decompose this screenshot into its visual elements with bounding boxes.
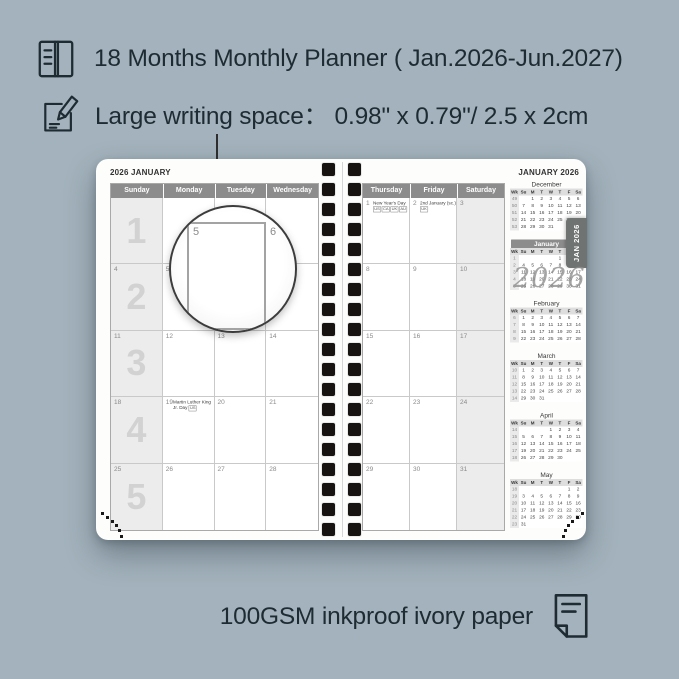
- mini-date: 21: [574, 381, 583, 388]
- binding-hole: [348, 383, 361, 396]
- right-page-title: JANUARY 2026: [518, 168, 579, 177]
- mini-date: [537, 486, 546, 493]
- mini-day-header: T: [555, 479, 564, 486]
- mini-date: 21: [555, 507, 564, 514]
- date-number: 10: [460, 266, 467, 273]
- mini-date: 3: [537, 315, 546, 322]
- mini-date: [519, 196, 528, 203]
- mini-week-number: 9: [510, 336, 519, 343]
- mini-date: 24: [537, 388, 546, 395]
- mini-day-header: Wk: [510, 248, 519, 255]
- stitch-dot: [576, 516, 579, 519]
- mini-day-header: T: [537, 360, 546, 367]
- mini-date: 10: [564, 434, 573, 441]
- mini-date: 7: [519, 203, 528, 210]
- mini-date: 25: [555, 217, 564, 224]
- mini-date: 18: [574, 441, 583, 448]
- mini-day-header: M: [528, 308, 537, 315]
- mini-week-number: 8: [510, 329, 519, 336]
- mini-date: 27: [564, 336, 573, 343]
- mini-date: [537, 255, 546, 262]
- date-number: 21: [269, 399, 276, 406]
- mini-date: 24: [546, 217, 555, 224]
- date-number: 16: [413, 333, 420, 340]
- mini-day-header: F: [564, 360, 573, 367]
- holiday-label: New Year's Day USCAUKAU: [373, 200, 411, 212]
- date-number: 30: [413, 466, 420, 473]
- mini-date: 28: [574, 336, 583, 343]
- date-number: 17: [460, 333, 467, 340]
- mini-date: 17: [519, 507, 528, 514]
- mini-date: 1: [528, 196, 537, 203]
- stitch-dot: [581, 512, 584, 515]
- week-number: 4: [111, 397, 162, 462]
- mini-date: 18: [528, 507, 537, 514]
- day-header: Saturday: [457, 184, 504, 198]
- mini-day-header: T: [555, 308, 564, 315]
- calendar-day-cell: 23: [410, 397, 457, 463]
- mini-date: 11: [546, 322, 555, 329]
- mini-day-header: Su: [519, 189, 528, 196]
- product-image: 18 Months Monthly Planner ( Jan.2026-Jun…: [0, 0, 679, 679]
- mini-week-number: 13: [510, 388, 519, 395]
- mini-date: 16: [537, 210, 546, 217]
- mini-date: 2: [528, 315, 537, 322]
- date-number: 9: [413, 266, 417, 273]
- calendar-day-cell: 20: [215, 397, 267, 463]
- mini-date: 7: [574, 315, 583, 322]
- mini-date: 13: [528, 441, 537, 448]
- date-number: 27: [218, 466, 225, 473]
- date-number: 26: [166, 466, 173, 473]
- binding-hole: [348, 343, 361, 356]
- mini-week-number: 18: [510, 455, 519, 462]
- mini-day-header: T: [537, 189, 546, 196]
- mini-date: 24: [564, 448, 573, 455]
- country-badge: UK: [420, 206, 428, 212]
- mini-day-header: Wk: [510, 420, 519, 427]
- mini-date: 13: [564, 374, 573, 381]
- mini-date: 12: [555, 322, 564, 329]
- binding-hole: [348, 503, 361, 516]
- mini-day-header: Su: [519, 308, 528, 315]
- date-number: 12: [166, 333, 173, 340]
- feature-line-2: Large writing space： 0.98" x 0.79"/ 2.5 …: [38, 93, 588, 135]
- mini-date: 14: [574, 322, 583, 329]
- mini-date: 10: [537, 322, 546, 329]
- calendar-day-cell: 22: [363, 397, 410, 463]
- mini-day-header: W: [546, 189, 555, 196]
- week-number: 5: [111, 464, 162, 530]
- mini-day-header: M: [528, 479, 537, 486]
- mini-date: 22: [546, 448, 555, 455]
- holiday-label: 2nd January (sc.) UK: [420, 200, 458, 212]
- mini-date: 14: [537, 441, 546, 448]
- mini-date: 15: [546, 441, 555, 448]
- calendar-day-cell: 21: [266, 397, 318, 463]
- calendar-day-cell: 17: [457, 331, 504, 397]
- mini-date: 26: [537, 514, 546, 521]
- binding-hole: [348, 483, 361, 496]
- mini-day-header: M: [528, 360, 537, 367]
- binding-hole: [348, 323, 361, 336]
- day-header: Thursday: [363, 184, 410, 198]
- mini-date: 29: [519, 395, 528, 402]
- calendar-day-cell: 15: [363, 331, 410, 397]
- mini-week-number: 50: [510, 203, 519, 210]
- mini-week-number: 6: [510, 315, 519, 322]
- mini-date: 31: [519, 521, 528, 528]
- mini-date: 16: [574, 500, 583, 507]
- mini-date: 2: [574, 486, 583, 493]
- mini-date: 4: [546, 315, 555, 322]
- binding-hole: [348, 403, 361, 416]
- mini-date: [555, 521, 564, 528]
- mini-date: 9: [574, 493, 583, 500]
- mini-date: 12: [519, 441, 528, 448]
- mini-date: 28: [555, 514, 564, 521]
- mini-date: 7: [574, 367, 583, 374]
- calendar-day-cell: 13: [215, 331, 267, 397]
- page-gutter-line: [342, 162, 343, 537]
- mini-calendar-title: April: [510, 411, 583, 420]
- mini-date: 20: [564, 381, 573, 388]
- mini-date: 8: [564, 493, 573, 500]
- mini-date: 4: [555, 196, 564, 203]
- mini-date: 30: [528, 395, 537, 402]
- binding-hole: [348, 363, 361, 376]
- mini-date: 24: [519, 514, 528, 521]
- mini-date: 29: [528, 224, 537, 231]
- country-badge: AU: [399, 206, 407, 212]
- mini-week-number: 11: [510, 374, 519, 381]
- date-number: 3: [460, 200, 464, 207]
- mini-date: [519, 427, 528, 434]
- mini-date: 12: [564, 203, 573, 210]
- mini-date: 30: [555, 455, 564, 462]
- mini-date: 22: [564, 507, 573, 514]
- mini-date: 18: [555, 210, 564, 217]
- mini-date: [574, 455, 583, 462]
- mini-date: 25: [546, 388, 555, 395]
- mini-date: 22: [528, 217, 537, 224]
- mini-week-number: 17: [510, 448, 519, 455]
- calendar-day-cell: 525: [111, 464, 163, 530]
- binding-hole: [348, 223, 361, 236]
- mini-date: 11: [528, 500, 537, 507]
- mini-date: [528, 255, 537, 262]
- calendar-day-cell: 28: [266, 464, 318, 530]
- feature-text-writing-space: Large writing space： 0.98" x 0.79"/ 2.5 …: [95, 97, 588, 132]
- mini-date: 9: [528, 374, 537, 381]
- mini-date: 19: [537, 507, 546, 514]
- mini-day-header: Sa: [574, 308, 583, 315]
- calendar-day-cell: 22nd January (sc.) UK: [410, 198, 457, 264]
- mini-date: [564, 455, 573, 462]
- mini-date: 7: [555, 493, 564, 500]
- mini-date: 6: [564, 367, 573, 374]
- mini-date: 21: [519, 217, 528, 224]
- mini-day-header: T: [537, 479, 546, 486]
- mini-date: [528, 486, 537, 493]
- binding-hole: [348, 203, 361, 216]
- mini-date: 2: [537, 196, 546, 203]
- mini-week-number: 52: [510, 217, 519, 224]
- mini-week-number: 18: [510, 486, 519, 493]
- feature-line-bottom: 100GSM inkproof ivory paper: [220, 591, 594, 643]
- binding-hole: [322, 163, 335, 176]
- mini-date: 21: [574, 329, 583, 336]
- mini-date: [537, 521, 546, 528]
- mini-date: 14: [574, 374, 583, 381]
- mini-date: [546, 521, 555, 528]
- calendar-day-cell: 27: [215, 464, 267, 530]
- mini-date: 8: [519, 374, 528, 381]
- mini-date: 31: [537, 395, 546, 402]
- mini-date: [574, 521, 583, 528]
- mini-date: 5: [537, 493, 546, 500]
- mini-day-header: Sa: [574, 479, 583, 486]
- date-number: 14: [269, 333, 276, 340]
- date-number: 20: [218, 399, 225, 406]
- mini-date: 3: [519, 493, 528, 500]
- mini-calendar-grid: WkSuMTWTFSa14123415567891011161213141516…: [510, 420, 583, 462]
- mini-calendar-title: February: [510, 299, 583, 308]
- stitch-dot: [571, 520, 574, 523]
- mini-day-header: T: [537, 420, 546, 427]
- binding-hole: [348, 263, 361, 276]
- mini-date: 16: [528, 329, 537, 336]
- mini-day-header: Sa: [574, 360, 583, 367]
- day-header: Monday: [163, 184, 215, 198]
- mini-date: 8: [546, 434, 555, 441]
- binding-hole: [348, 283, 361, 296]
- mini-date: 22: [519, 336, 528, 343]
- date-number: 22: [366, 399, 373, 406]
- mini-day-header: T: [537, 308, 546, 315]
- mini-day-header: W: [546, 360, 555, 367]
- mini-date: [519, 255, 528, 262]
- mini-day-header: W: [546, 248, 555, 255]
- calendar-day-cell: 1New Year's Day USCAUKAU: [363, 198, 410, 264]
- binding-hole: [322, 203, 335, 216]
- mini-date: 1: [519, 315, 528, 322]
- stitch-dot: [120, 535, 123, 538]
- mini-date: 10: [519, 500, 528, 507]
- mini-date: 23: [537, 217, 546, 224]
- mini-date: 26: [555, 388, 564, 395]
- mini-date: 15: [519, 381, 528, 388]
- mini-day-header: F: [564, 308, 573, 315]
- date-number: 23: [413, 399, 420, 406]
- year-watermark: 2026: [513, 263, 586, 294]
- mini-day-header: Wk: [510, 360, 519, 367]
- binding-hole: [322, 303, 335, 316]
- binding-hole: [322, 343, 335, 356]
- mini-day-header: T: [555, 248, 564, 255]
- mini-date: 26: [555, 336, 564, 343]
- mini-date: 4: [546, 367, 555, 374]
- binding-hole: [322, 323, 335, 336]
- date-number: 2: [413, 200, 417, 207]
- mini-date: 6: [546, 493, 555, 500]
- mini-date: 22: [519, 388, 528, 395]
- mini-week-number: 49: [510, 196, 519, 203]
- mini-date: 3: [537, 367, 546, 374]
- mini-week-number: 20: [510, 500, 519, 507]
- mini-date: [528, 427, 537, 434]
- binding-hole: [348, 183, 361, 196]
- mini-date: 21: [537, 448, 546, 455]
- mini-day-header: T: [555, 360, 564, 367]
- mini-date: 20: [574, 210, 583, 217]
- calendar-day-cell: 418: [111, 397, 163, 463]
- paper-sheet-icon: [546, 591, 594, 643]
- mini-date: 28: [537, 455, 546, 462]
- mini-day-header: T: [555, 420, 564, 427]
- mini-week-number: 10: [510, 367, 519, 374]
- mini-date: 26: [519, 455, 528, 462]
- date-number: 31: [460, 466, 467, 473]
- mini-day-header: Wk: [510, 308, 519, 315]
- calendar-day-cell: 29: [363, 464, 410, 530]
- mini-date: [519, 486, 528, 493]
- mini-date: 4: [528, 493, 537, 500]
- magnified-writing-cell: [187, 222, 266, 330]
- mini-week-number: 14: [510, 427, 519, 434]
- holiday-label: Martin Luther King Jr. Day US: [173, 399, 211, 411]
- calendar-day-cell: 10: [457, 264, 504, 330]
- binding-hole: [348, 243, 361, 256]
- stitch-dot: [562, 535, 565, 538]
- binding-hole: [322, 423, 335, 436]
- mini-date: 1: [564, 486, 573, 493]
- mini-date: 13: [564, 322, 573, 329]
- calendar-day-cell: 16: [410, 331, 457, 397]
- stitch-dot: [564, 529, 567, 532]
- binding-hole: [322, 363, 335, 376]
- calendar-day-cell: 30: [410, 464, 457, 530]
- mini-date: 13: [574, 203, 583, 210]
- binding-hole: [322, 283, 335, 296]
- mini-date: 14: [519, 210, 528, 217]
- mini-calendar-title: May: [510, 471, 583, 480]
- date-number: 28: [269, 466, 276, 473]
- book-icon: [33, 38, 79, 80]
- mini-date: 13: [546, 500, 555, 507]
- binding-hole: [322, 223, 335, 236]
- stitch-dot: [115, 524, 118, 527]
- mini-week-number: 15: [510, 434, 519, 441]
- mini-date: 11: [574, 434, 583, 441]
- mini-week-number: 22: [510, 514, 519, 521]
- binding-hole: [348, 163, 361, 176]
- mini-date: 28: [519, 224, 528, 231]
- stitch-dot: [111, 520, 114, 523]
- mini-date: 5: [519, 434, 528, 441]
- binding-hole: [322, 263, 335, 276]
- day-header: Friday: [410, 184, 457, 198]
- mini-date: 31: [546, 224, 555, 231]
- mini-date: 15: [519, 329, 528, 336]
- feature-text-paper: 100GSM inkproof ivory paper: [220, 603, 533, 631]
- date-number: 29: [366, 466, 373, 473]
- mini-date: [574, 395, 583, 402]
- date-number: 15: [366, 333, 373, 340]
- binding-hole: [322, 523, 335, 536]
- mini-date: 3: [546, 196, 555, 203]
- week-number: 3: [111, 331, 162, 396]
- calendar-day-cell: 3: [457, 198, 504, 264]
- mini-day-header: T: [537, 248, 546, 255]
- mini-day-header: Wk: [510, 189, 519, 196]
- binding-hole: [348, 523, 361, 536]
- mini-date: [555, 224, 564, 231]
- binding-hole: [348, 303, 361, 316]
- date-number: 18: [114, 399, 121, 406]
- mini-date: 30: [537, 224, 546, 231]
- mini-date: 1: [519, 367, 528, 374]
- calendar-day-cell: 24: [111, 264, 163, 330]
- mini-week-number: 21: [510, 507, 519, 514]
- mini-day-header: F: [564, 189, 573, 196]
- mini-date: 10: [546, 203, 555, 210]
- mini-date: 2: [555, 427, 564, 434]
- mini-week-number: 51: [510, 210, 519, 217]
- mini-calendar-title: December: [510, 180, 583, 189]
- mini-calendar-march: MarchWkSuMTWTFSa101234567118910111213141…: [510, 352, 583, 403]
- mini-day-header: M: [528, 189, 537, 196]
- mini-day-header: M: [528, 420, 537, 427]
- mini-date: 27: [546, 514, 555, 521]
- mini-day-header: Sa: [574, 420, 583, 427]
- mini-date: 10: [537, 374, 546, 381]
- mini-day-header: M: [528, 248, 537, 255]
- country-badge: US: [189, 405, 197, 411]
- mini-week-number: 23: [510, 521, 519, 528]
- mini-date: 20: [528, 448, 537, 455]
- mini-week-number: 7: [510, 322, 519, 329]
- mini-day-header: W: [546, 308, 555, 315]
- mini-date: 9: [537, 203, 546, 210]
- mini-calendar-april: AprilWkSuMTWTFSa141234155678910111612131…: [510, 411, 583, 462]
- date-number: 4: [114, 266, 118, 273]
- country-badge: CA: [382, 206, 390, 212]
- calendar-day-cell: 311: [111, 331, 163, 397]
- mini-calendar-title: March: [510, 352, 583, 361]
- mini-date: 23: [528, 388, 537, 395]
- mini-day-header: Sa: [574, 189, 583, 196]
- stitch-dot: [118, 529, 121, 532]
- week-number: 1: [111, 198, 162, 263]
- feature-text-months: 18 Months Monthly Planner ( Jan.2026-Jun…: [94, 45, 623, 73]
- mini-date: 25: [528, 514, 537, 521]
- mini-date: 6: [574, 196, 583, 203]
- pencil-note-icon: [38, 93, 80, 135]
- mini-date: 15: [528, 210, 537, 217]
- mini-day-header: Su: [519, 248, 528, 255]
- mini-date: [537, 427, 546, 434]
- mini-date: 16: [555, 441, 564, 448]
- mini-date: 23: [528, 336, 537, 343]
- mini-date: [564, 395, 573, 402]
- mini-week-number: 53: [510, 224, 519, 231]
- date-number: 24: [460, 399, 467, 406]
- binding-hole: [322, 183, 335, 196]
- mini-date: 20: [564, 329, 573, 336]
- mini-date: 17: [537, 329, 546, 336]
- calendar-day-cell: 24: [457, 397, 504, 463]
